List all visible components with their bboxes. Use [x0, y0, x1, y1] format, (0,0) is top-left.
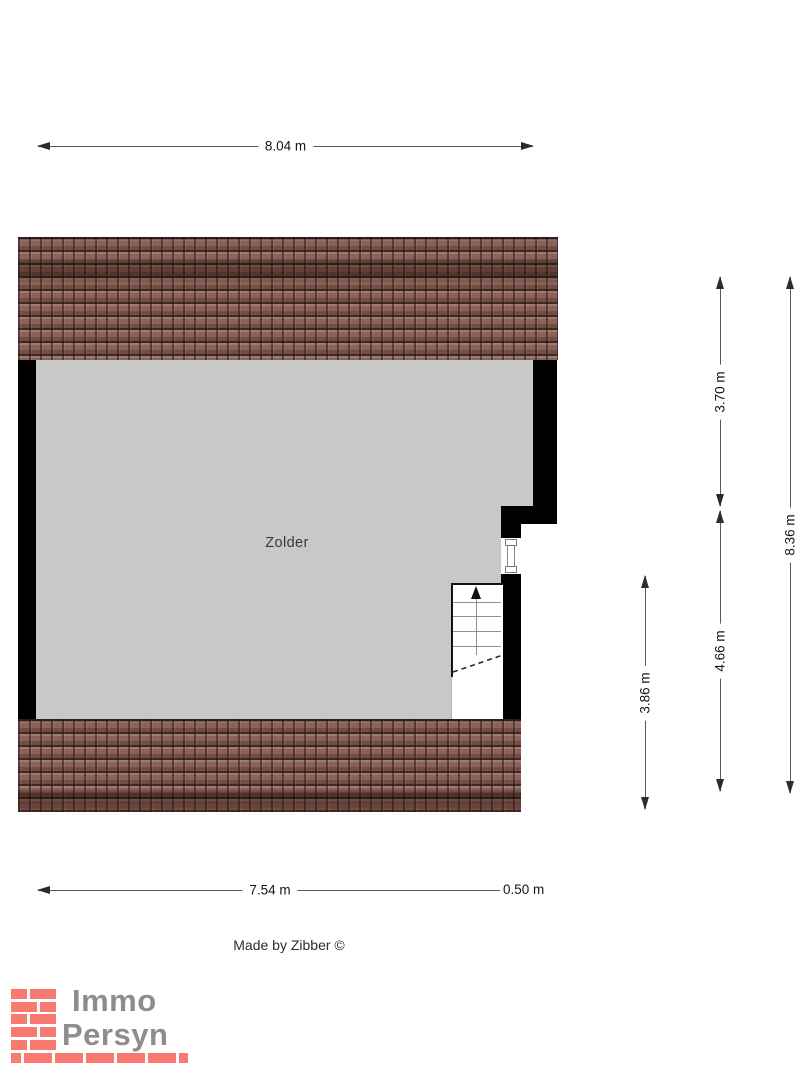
dimension-width-offset-label: 0.50 m	[500, 883, 547, 897]
arrow-up-icon	[641, 575, 649, 588]
dimension-label: 7.54 m	[242, 882, 297, 899]
room-floor	[36, 360, 533, 506]
room-floor	[36, 583, 451, 720]
floor-plan-page: 8.04 m Zolder 3.70 m	[0, 0, 810, 1080]
wall-inner-lower	[501, 574, 521, 720]
arrow-down-icon	[716, 494, 724, 507]
wall-right-outer	[533, 360, 557, 524]
arrow-down-icon	[786, 781, 794, 794]
wall-inner-upper	[501, 524, 521, 539]
dimension-width-main: 7.54 m	[38, 883, 502, 897]
dimension-height-lower: 4.66 m	[713, 511, 727, 791]
roof-top	[18, 237, 558, 360]
arrow-down-icon	[641, 797, 649, 810]
dimension-width-total: 8.04 m	[38, 139, 533, 153]
arrow-left-icon	[37, 142, 50, 150]
arrow-up-icon	[786, 276, 794, 289]
dimension-height-total: 8.36 m	[783, 277, 797, 793]
arrow-up-icon	[716, 276, 724, 289]
wall-left	[18, 360, 36, 719]
arrow-left-icon	[37, 886, 50, 894]
wall-jog	[501, 506, 557, 524]
roof-bottom	[18, 719, 521, 812]
arrow-up-icon	[716, 510, 724, 523]
window-frame-cap	[505, 539, 517, 546]
dimension-label: 4.66 m	[712, 623, 729, 678]
window	[501, 538, 521, 574]
dimension-label: 3.86 m	[637, 665, 654, 720]
dimension-height-stair-zone: 3.86 m	[638, 576, 652, 809]
dimension-label: 8.36 m	[782, 507, 799, 562]
staircase	[451, 583, 503, 720]
logo-text-line2: Persyn	[62, 1019, 168, 1050]
credit-text: Made by Zibber ©	[174, 937, 404, 953]
arrow-down-icon	[716, 779, 724, 792]
logo: Immo Persyn	[10, 982, 210, 1074]
dimension-label: 3.70 m	[712, 364, 729, 419]
arrow-right-icon	[521, 142, 534, 150]
logo-text-line1: Immo	[72, 985, 157, 1016]
window-frame-cap	[505, 566, 517, 573]
stair-headroom-dashed-line	[452, 583, 503, 720]
dimension-label: 8.04 m	[258, 138, 313, 155]
room-label: Zolder	[237, 535, 337, 551]
dimension-height-upper: 3.70 m	[713, 277, 727, 506]
